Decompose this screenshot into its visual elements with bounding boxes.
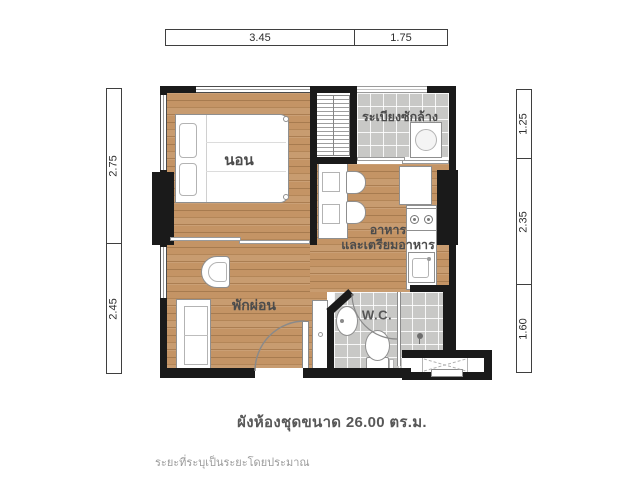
bed-seam-line (206, 142, 286, 143)
wc-sink (336, 306, 358, 336)
kitchen-faucet (427, 257, 431, 261)
window-bedroom-top (196, 86, 310, 93)
dining-chair (346, 201, 366, 224)
bedroom-label: นอน (224, 148, 254, 172)
dimension-cell-right-1: 1.25 (517, 90, 531, 158)
kitchen-sink-basin (412, 258, 429, 278)
dimension-cell-top-2: 1.75 (354, 30, 447, 45)
sliding-door-balcony (402, 160, 449, 164)
wall-kitchen-bottom (410, 285, 456, 292)
floor-plan: นอน ระเบียงซักล้าง อาหาร และเตรียมอาหาร … (0, 0, 640, 480)
ac-ledge-divider (422, 358, 423, 372)
shower-head-stem (419, 339, 420, 344)
sliding-door-bedroom (170, 237, 241, 241)
window-living-left (160, 247, 167, 298)
wall-wc-left (327, 308, 334, 368)
wall-balcony-left (350, 93, 357, 157)
kitchen-label-line1: อาหาร (341, 223, 435, 238)
wall-left-pier (152, 172, 174, 245)
armchair-seat (208, 262, 227, 282)
placemat (322, 204, 340, 224)
dimension-cell-left-2: 2.45 (107, 243, 121, 373)
dimension-bar-top: 3.45 1.75 (165, 29, 448, 46)
shower-partition (397, 292, 401, 366)
dining-chair (346, 171, 366, 194)
wall-bedroom-right (310, 93, 317, 245)
sofa-cushion-divider (184, 335, 208, 336)
dimension-value: 2.35 (518, 211, 530, 232)
wall-right-upper (449, 86, 456, 170)
wardrobe-divider (333, 96, 334, 155)
ledge-door-sill (431, 369, 463, 377)
sliding-door-bedroom (239, 240, 310, 244)
refrigerator (399, 166, 432, 205)
pillow (179, 163, 197, 196)
dimension-value: 2.45 (108, 298, 120, 319)
entrance-opening (255, 368, 303, 378)
wc-faucet (340, 319, 344, 323)
dimension-value: 1.60 (518, 318, 530, 339)
armchair (201, 256, 230, 288)
bed-fold-line (206, 115, 207, 202)
kitchen-label-line2: และเตรียมอาหาร (341, 238, 435, 253)
living-room-label: พักผ่อน (232, 295, 276, 317)
dimension-bar-right: 1.25 2.35 1.60 (516, 89, 532, 373)
entry-cabinet (312, 300, 328, 371)
washing-machine-drum (415, 129, 437, 151)
wc-label: W.C. (362, 308, 392, 323)
dimension-cell-top-1: 3.45 (166, 30, 354, 45)
balcony-label: ระเบียงซักล้าง (362, 107, 438, 127)
wall-shower-right (443, 292, 456, 358)
kitchen-sink (408, 252, 435, 283)
kitchen-label: อาหาร และเตรียมอาหาร (341, 223, 435, 253)
dimension-value: 2.75 (108, 155, 120, 176)
entrance-door-leaf (302, 321, 309, 372)
sliding-door-balcony (357, 157, 405, 161)
dimension-cell-right-3: 1.60 (517, 284, 531, 372)
wardrobe (316, 95, 350, 156)
ac-ledge-divider (467, 358, 468, 372)
pillow (179, 123, 197, 158)
window-bedroom-left (160, 95, 167, 170)
stove-burner-dot (427, 218, 430, 221)
plan-caption: ผังห้องชุดขนาด 26.00 ตร.ม. (226, 410, 438, 434)
wall-top-mid (310, 86, 357, 93)
bed-post (283, 116, 289, 122)
toilet (365, 330, 390, 361)
dimension-bar-left: 2.75 2.45 (106, 88, 122, 374)
dimension-cell-left-1: 2.75 (107, 89, 121, 243)
shower-head (417, 333, 423, 339)
stove-burner-dot (413, 218, 416, 221)
dimension-cell-right-2: 2.35 (517, 158, 531, 284)
balcony-railing (357, 86, 427, 93)
wall-wardrobe-bottom (310, 157, 357, 164)
sofa (176, 299, 211, 371)
bed-post (283, 194, 289, 200)
wall-right-pier (437, 170, 458, 245)
washing-machine (410, 122, 442, 158)
dimension-value: 1.25 (518, 113, 530, 134)
plan-disclaimer: ระยะที่ระบุเป็นระยะโดยประมาณ (155, 453, 310, 471)
placemat (322, 172, 340, 192)
wall-ledge-top (402, 350, 492, 358)
cabinet-knob (318, 332, 323, 337)
